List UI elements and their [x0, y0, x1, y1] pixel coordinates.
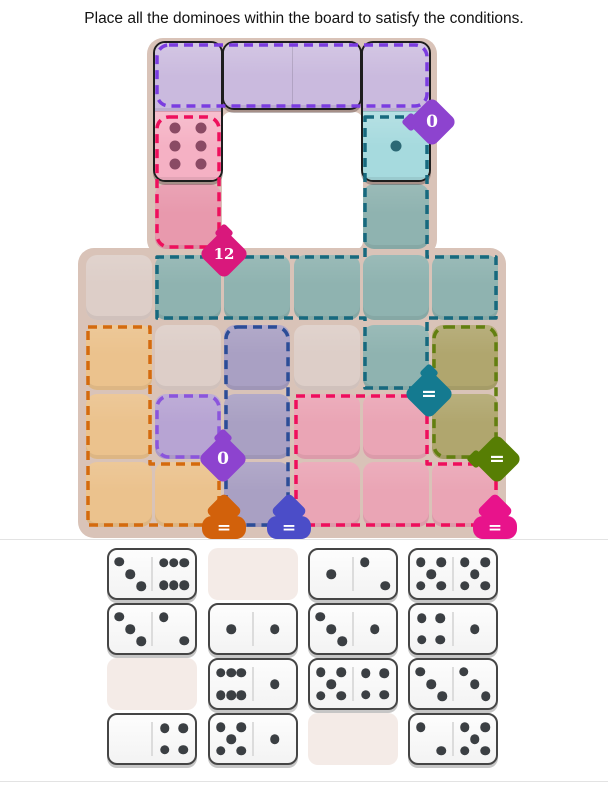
- pip: [437, 558, 447, 568]
- pip: [416, 581, 426, 591]
- pip: [426, 679, 436, 689]
- domino-half-left: [410, 660, 452, 708]
- badge-orange: =: [200, 497, 248, 541]
- pip: [159, 580, 169, 590]
- badge-olive: =: [471, 433, 523, 485]
- pip: [416, 723, 426, 733]
- pip: [480, 558, 490, 568]
- domino-half-right: [454, 550, 496, 598]
- badge-teal: =: [403, 368, 455, 420]
- placed-half: [224, 43, 292, 108]
- pip: [195, 123, 206, 134]
- pip: [417, 614, 427, 624]
- domino-half-right: [354, 605, 396, 653]
- pip: [237, 723, 247, 733]
- badge-navy: =: [265, 497, 313, 541]
- badge-label-orange: =: [202, 516, 246, 539]
- domino-half-right: [153, 715, 195, 763]
- pip: [460, 723, 470, 733]
- pip: [114, 557, 124, 567]
- domino-half-right: [254, 605, 296, 653]
- tray-domino-1-1[interactable]: [208, 603, 298, 655]
- pip: [470, 734, 480, 744]
- pip: [436, 635, 446, 645]
- pip: [470, 679, 480, 689]
- pip: [361, 669, 371, 679]
- pip: [481, 692, 491, 702]
- badge-label-olive: =: [471, 433, 523, 485]
- tray-domino-3-6[interactable]: [107, 548, 197, 600]
- pip: [179, 580, 189, 590]
- domino-half-left: [109, 550, 151, 598]
- pip: [237, 668, 247, 678]
- domino-half-right: [454, 715, 496, 763]
- pip: [460, 746, 470, 756]
- pip: [415, 667, 425, 677]
- pip: [216, 668, 226, 678]
- pip: [480, 723, 490, 733]
- badge-purple-small: 0: [197, 433, 249, 485]
- domino-half-right: [153, 550, 195, 598]
- domino-half-left: [310, 550, 352, 598]
- pip: [470, 624, 480, 634]
- pip: [391, 141, 402, 152]
- pip: [237, 690, 247, 700]
- placed-half: [155, 111, 221, 180]
- pip: [436, 614, 446, 624]
- badge-purple-top: 0: [406, 96, 458, 148]
- domino-half-left: [210, 715, 252, 763]
- pip: [270, 679, 280, 689]
- pip: [480, 746, 490, 756]
- pip: [470, 569, 480, 579]
- pip: [136, 582, 146, 592]
- placed-half: [292, 43, 361, 108]
- tray-slot-empty-r1c2: [208, 548, 298, 600]
- pip: [460, 558, 470, 568]
- badge-label-pink-big: =: [473, 516, 517, 539]
- pip: [316, 691, 326, 701]
- pip: [216, 690, 226, 700]
- pip: [169, 580, 179, 590]
- pip: [125, 624, 135, 634]
- pip: [195, 141, 206, 152]
- page: Place all the dominoes within the board …: [0, 0, 608, 798]
- pip: [160, 724, 170, 734]
- pip: [170, 158, 181, 169]
- pip: [125, 569, 135, 579]
- tray-domino-3-1[interactable]: [308, 603, 398, 655]
- badge-pink-big: =: [471, 497, 519, 541]
- domino-half-left: [210, 605, 252, 653]
- pip: [437, 581, 447, 591]
- pip: [270, 734, 280, 744]
- domino-half-left: [310, 660, 352, 708]
- placed-domino-0-6[interactable]: [153, 41, 223, 182]
- pip: [326, 624, 336, 634]
- badge-pill: =: [202, 516, 246, 539]
- pip: [170, 123, 181, 134]
- domino-tray: [0, 0, 608, 798]
- pip: [195, 158, 206, 169]
- pip: [160, 745, 170, 755]
- pip: [159, 558, 169, 568]
- domino-half-right: [254, 660, 296, 708]
- pip: [437, 746, 447, 756]
- tray-domino-1-2[interactable]: [308, 548, 398, 600]
- badge-label-navy: =: [267, 516, 311, 539]
- pip: [337, 691, 347, 701]
- domino-half-right: [354, 550, 396, 598]
- pip: [226, 624, 236, 634]
- placed-domino-0-0[interactable]: [222, 41, 362, 110]
- domino-half-left: [210, 660, 252, 708]
- pip: [114, 612, 124, 622]
- tray-domino-6-1[interactable]: [208, 658, 298, 710]
- badge-label-purple-top: 0: [406, 96, 458, 148]
- pip: [380, 581, 390, 591]
- domino-half-left: [310, 605, 352, 653]
- badge-label-teal: =: [403, 368, 455, 420]
- pip: [379, 669, 389, 679]
- domino-half-left: [410, 550, 452, 598]
- domino-half-right: [254, 715, 296, 763]
- pip: [179, 636, 189, 646]
- badge-label-pink-top: 12: [198, 228, 250, 280]
- tray-domino-5-5[interactable]: [408, 548, 498, 600]
- pip: [226, 668, 236, 678]
- pip: [417, 635, 427, 645]
- pip: [178, 724, 188, 734]
- tray-slot-empty-r4c3: [308, 713, 398, 765]
- badge-pill: =: [473, 516, 517, 539]
- tray-domino-3-2[interactable]: [107, 603, 197, 655]
- pip: [337, 668, 347, 678]
- domino-half-left: [410, 715, 452, 763]
- pip: [337, 637, 347, 647]
- pip: [361, 690, 371, 700]
- pip: [426, 569, 436, 579]
- pip: [270, 624, 280, 634]
- domino-half-left: [109, 605, 151, 653]
- tray-domino-5-1[interactable]: [208, 713, 298, 765]
- pip: [460, 581, 470, 591]
- domino-half-right: [153, 605, 195, 653]
- domino-half-left: [109, 715, 151, 763]
- tray-slot-empty-r3c1: [107, 658, 197, 710]
- pip: [370, 624, 380, 634]
- pip: [159, 613, 169, 623]
- domino-half-right: [454, 605, 496, 653]
- pip: [326, 569, 336, 579]
- pip: [480, 581, 490, 591]
- tray-domino-2-5[interactable]: [408, 713, 498, 765]
- domino-half-right: [454, 660, 496, 708]
- domino-half-right: [354, 660, 396, 708]
- badge-pink-top: 12: [198, 228, 250, 280]
- badge-label-purple-small: 0: [197, 433, 249, 485]
- pip: [216, 723, 226, 733]
- pip: [379, 690, 389, 700]
- pip: [136, 637, 146, 647]
- pip: [316, 668, 326, 678]
- pip: [226, 734, 236, 744]
- pip: [216, 746, 226, 756]
- pip: [315, 612, 325, 622]
- tray-domino-0-4[interactable]: [107, 713, 197, 765]
- bottom-divider-line: [0, 781, 608, 782]
- pip: [178, 745, 188, 755]
- pip: [169, 558, 179, 568]
- pip: [237, 746, 247, 756]
- badge-pill: =: [267, 516, 311, 539]
- pip: [437, 692, 447, 702]
- tray-domino-5-4[interactable]: [308, 658, 398, 710]
- pip: [360, 558, 370, 568]
- pip: [179, 558, 189, 568]
- tray-domino-3-3[interactable]: [408, 658, 498, 710]
- pip: [326, 679, 336, 689]
- pip: [416, 558, 426, 568]
- pip: [459, 667, 469, 677]
- tray-domino-4-1[interactable]: [408, 603, 498, 655]
- domino-half-left: [410, 605, 452, 653]
- placed-half: [155, 43, 221, 111]
- pip: [226, 690, 236, 700]
- pip: [170, 141, 181, 152]
